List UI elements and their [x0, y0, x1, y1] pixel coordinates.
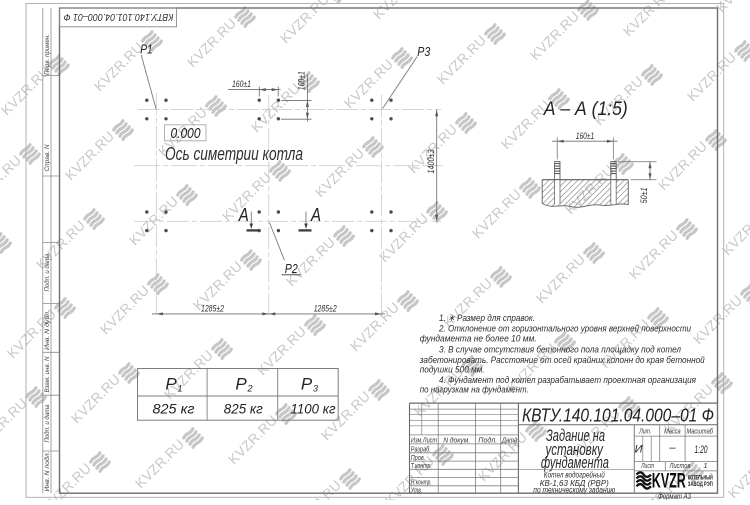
svg-text:1. ∗ Размер для справок.: 1. ∗ Размер для справок. — [439, 313, 535, 323]
svg-text:А: А — [310, 205, 321, 225]
svg-text:Инв. N подл.: Инв. N подл. — [43, 451, 51, 491]
svg-text:Р1: Р1 — [140, 43, 153, 57]
svg-text:Утв.: Утв. — [410, 487, 422, 494]
svg-text:50±1: 50±1 — [639, 187, 649, 203]
svg-text:3: 3 — [313, 384, 318, 394]
svg-text:А: А — [238, 205, 249, 225]
svg-text:по нагрузкам на фундамент.: по нагрузкам на фундамент. — [420, 384, 529, 394]
svg-text:Подп.: Подп. — [478, 436, 497, 444]
svg-text:Р: Р — [301, 375, 313, 394]
svg-text:1285±2: 1285±2 — [201, 303, 224, 313]
svg-text:0.000: 0.000 — [171, 125, 202, 142]
svg-text:Р: Р — [165, 375, 177, 394]
svg-text:1:20: 1:20 — [695, 444, 709, 456]
svg-text:забетонировать. Расстояние от: забетонировать. Расстояние от осей крайн… — [419, 355, 705, 365]
svg-text:160±1: 160±1 — [297, 71, 307, 90]
svg-text:2. Отклонение от горизонтально: 2. Отклонение от горизонтального уровня … — [438, 323, 691, 333]
svg-text:Подп. и дата: Подп. и дата — [43, 253, 51, 291]
svg-text:КВТУ.140.101.04.000–01 Ф: КВТУ.140.101.04.000–01 Ф — [64, 11, 174, 23]
svg-text:Справ. N: Справ. N — [44, 144, 51, 171]
svg-text:ЗАВОД РЭП: ЗАВОД РЭП — [688, 481, 713, 488]
svg-text:Подп. и дата: Подп. и дата — [43, 404, 51, 442]
svg-text:Дата: Дата — [501, 437, 517, 444]
svg-text:–: – — [668, 442, 676, 454]
svg-text:Разраб.: Разраб. — [411, 446, 431, 454]
svg-text:1285±2: 1285±2 — [314, 303, 337, 313]
svg-text:по техническому заданию: по техническому заданию — [533, 486, 615, 495]
svg-text:Перв. примен.: Перв. примен. — [44, 34, 51, 75]
svg-text:Формат А3: Формат А3 — [658, 492, 691, 500]
svg-text:1: 1 — [177, 384, 182, 394]
svg-text:Р2: Р2 — [285, 262, 298, 276]
svg-text:Т.контр.: Т.контр. — [411, 463, 432, 470]
svg-text:Н.контр.: Н.контр. — [411, 480, 432, 487]
svg-text:160±1: 160±1 — [576, 131, 595, 141]
svg-text:Изм.Лист: Изм.Лист — [411, 437, 437, 444]
svg-text:825 кг: 825 кг — [153, 402, 195, 417]
svg-text:KVZR: KVZR — [652, 469, 686, 492]
svg-text:КВТУ.140.101.04.000–01 Ф: КВТУ.140.101.04.000–01 Ф — [522, 405, 714, 426]
svg-text:Масса: Масса — [664, 429, 681, 436]
svg-text:N докум.: N докум. — [443, 436, 470, 444]
svg-text:А – А (1:5): А – А (1:5) — [543, 99, 628, 120]
svg-text:Р3: Р3 — [417, 45, 430, 59]
svg-text:825 кг: 825 кг — [224, 402, 263, 417]
svg-text:фундамента не более 10 мм.: фундамента не более 10 мм. — [420, 334, 537, 344]
svg-text:Масштаб: Масштаб — [686, 428, 713, 436]
svg-text:1: 1 — [703, 461, 707, 470]
svg-text:Инв. N дубл.: Инв. N дубл. — [43, 310, 51, 350]
svg-text:160±1: 160±1 — [232, 79, 251, 89]
svg-text:Ось симетрии котла: Ось симетрии котла — [165, 144, 303, 164]
svg-text:1100 кг: 1100 кг — [291, 402, 336, 417]
svg-text:Лит.: Лит. — [639, 429, 652, 436]
svg-text:Пров.: Пров. — [411, 455, 426, 462]
svg-text:И: И — [635, 444, 643, 456]
svg-text:Р: Р — [235, 375, 247, 394]
svg-text:3. В случае отсутствия бетонно: 3. В случае отсутствия бетонного пола пл… — [439, 345, 681, 355]
svg-text:Взам. инв. N: Взам. инв. N — [44, 356, 51, 392]
svg-text:подушки 500 мм.: подушки 500 мм. — [420, 365, 485, 375]
svg-text:2: 2 — [246, 384, 252, 394]
svg-text:Котел водогрейный: Котел водогрейный — [544, 470, 605, 479]
svg-text:1400±3: 1400±3 — [426, 150, 436, 174]
